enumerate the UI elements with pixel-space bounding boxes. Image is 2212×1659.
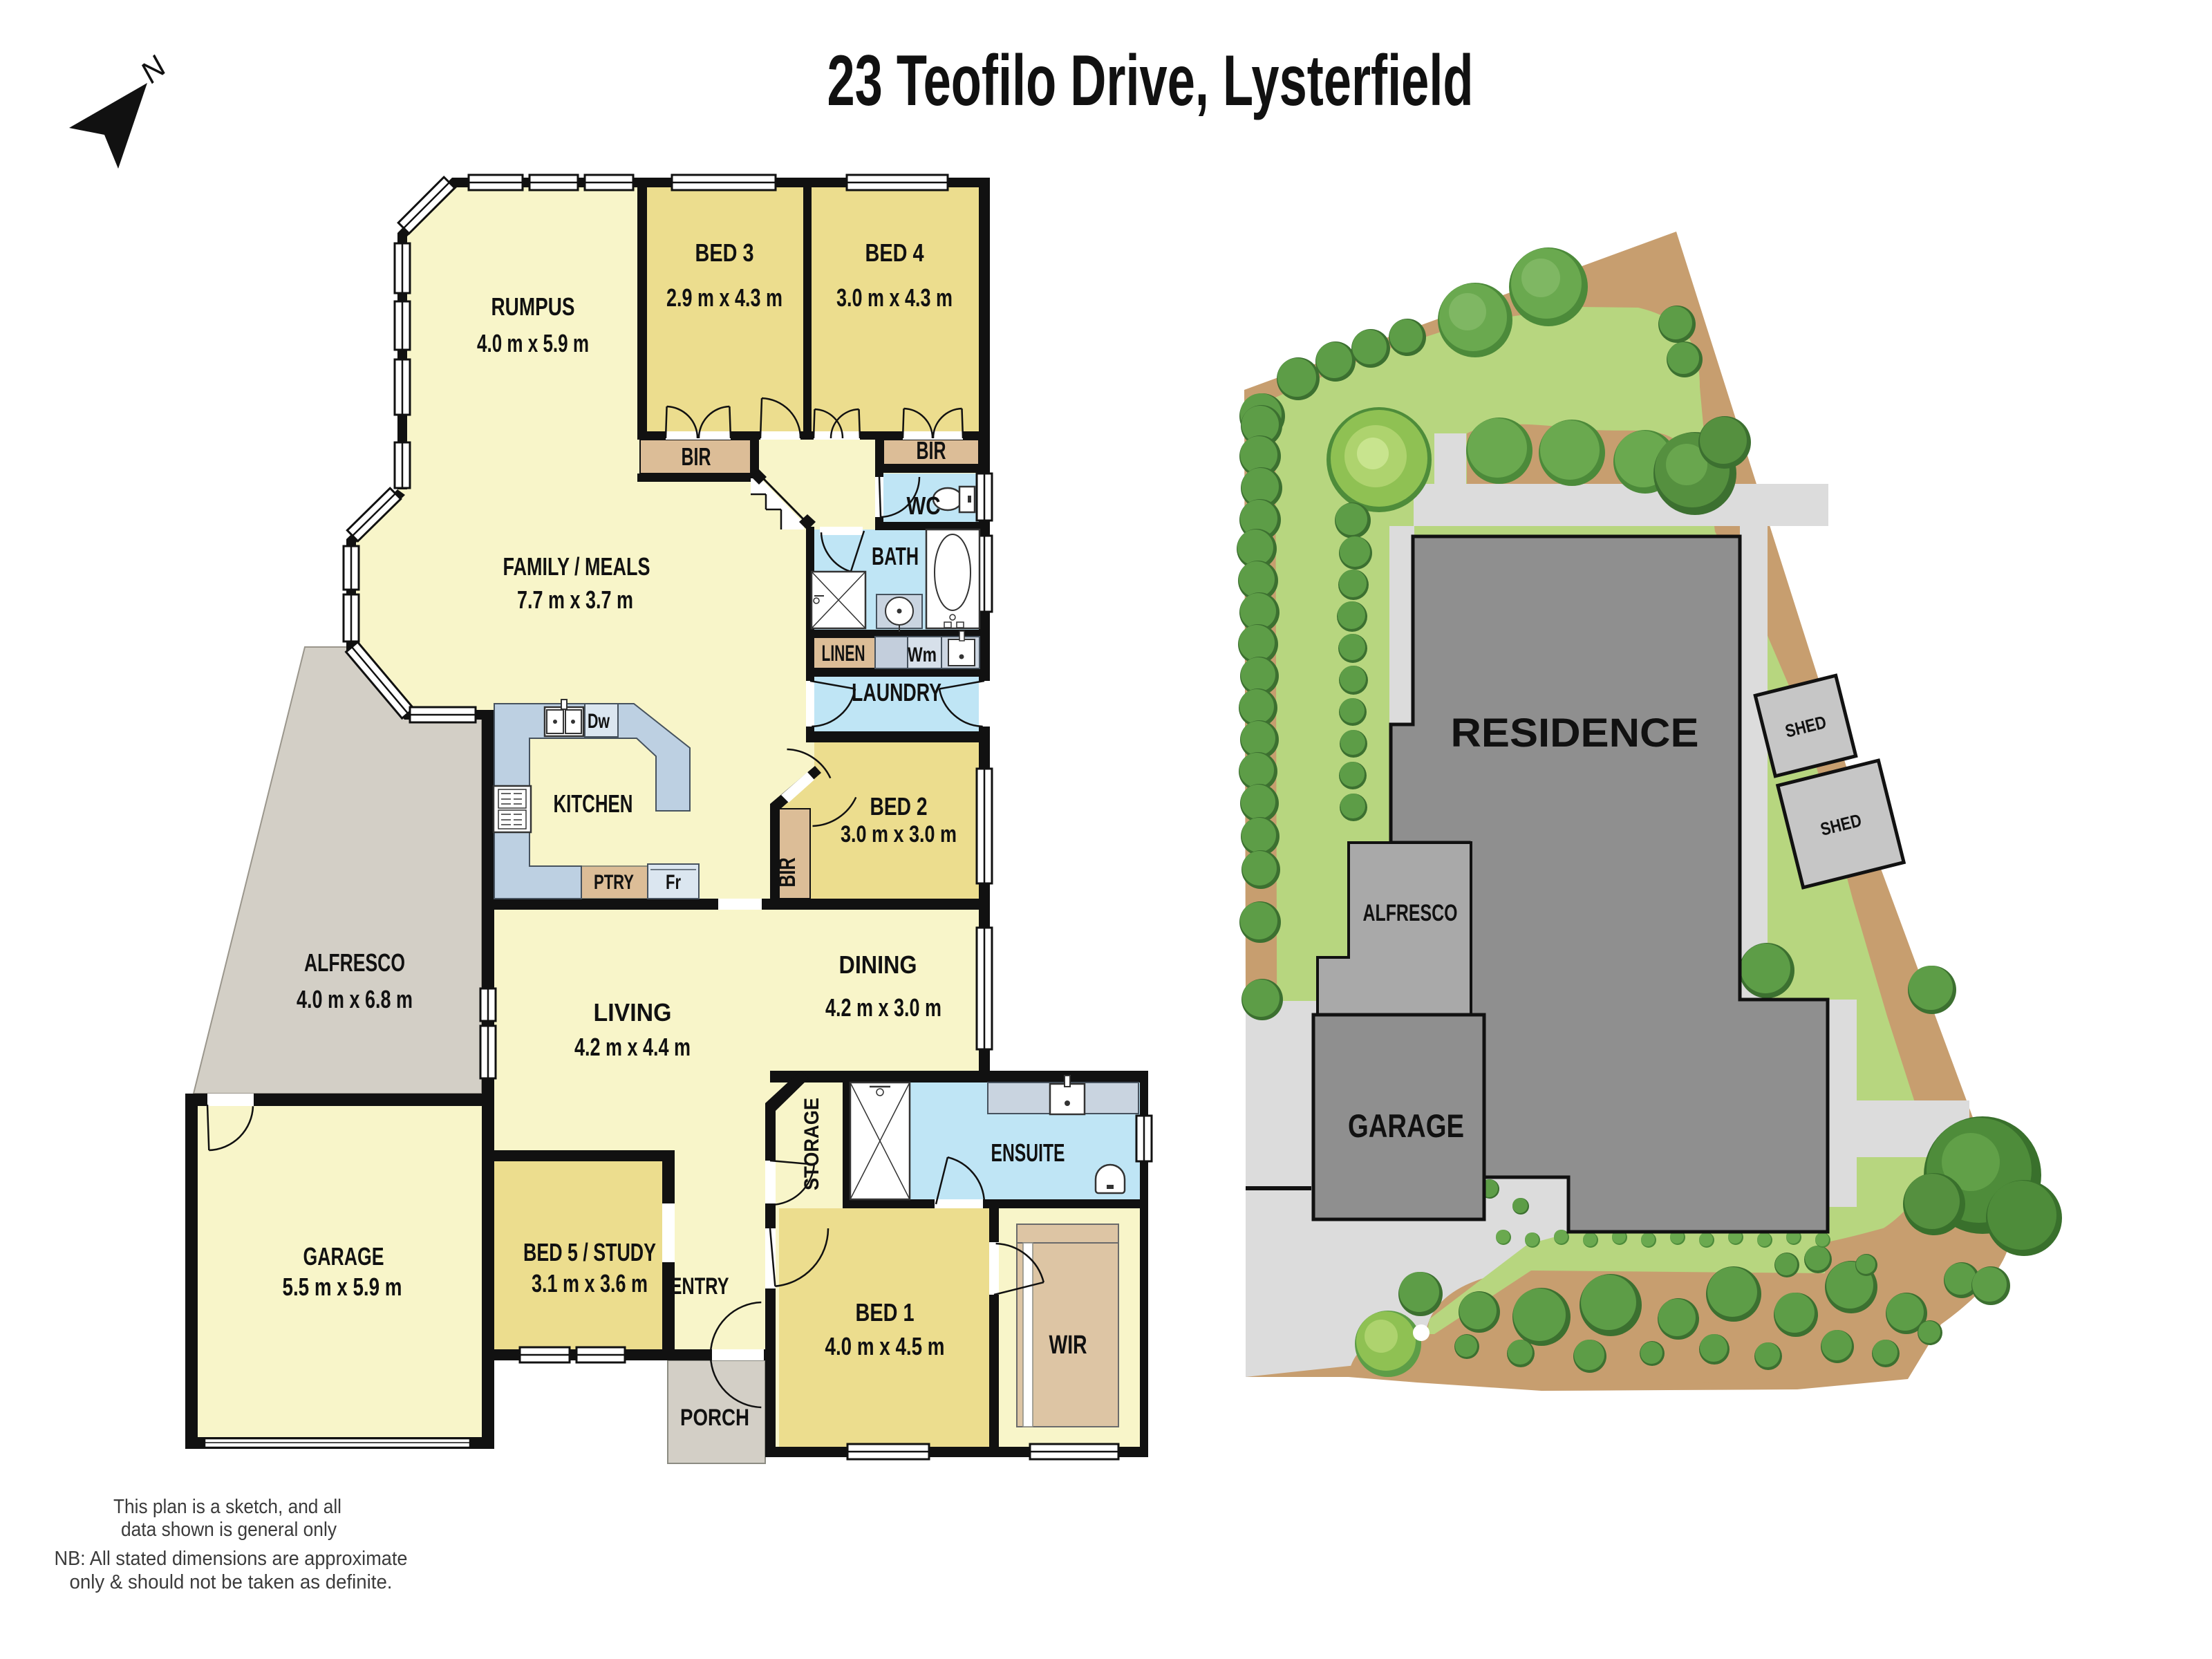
svg-text:BATH: BATH [872,542,919,570]
svg-text:DINING: DINING [839,950,917,979]
svg-text:BED 4: BED 4 [865,238,924,267]
svg-text:3.0 m x 4.3 m: 3.0 m x 4.3 m [836,283,953,312]
svg-text:Dw: Dw [588,710,610,733]
svg-text:NB: All stated dimensions are: NB: All stated dimensions are approximat… [55,1548,408,1570]
svg-text:BED 3: BED 3 [695,238,754,267]
svg-text:PTRY: PTRY [594,871,634,894]
svg-text:WIR: WIR [1049,1331,1087,1360]
svg-text:BED 2: BED 2 [870,792,928,821]
svg-text:PORCH: PORCH [680,1405,749,1431]
svg-text:BED 1: BED 1 [856,1298,915,1327]
svg-text:RESIDENCE: RESIDENCE [1451,711,1699,756]
svg-text:This plan is a sketch, and all: This plan is a sketch, and all [113,1496,341,1518]
svg-text:ENSUITE: ENSUITE [991,1138,1065,1167]
svg-text:BIR: BIR [682,442,711,471]
svg-text:LAUNDRY: LAUNDRY [852,678,941,706]
svg-text:GARAGE: GARAGE [303,1242,384,1271]
svg-text:LIVING: LIVING [594,998,672,1027]
svg-text:data shown is general only: data shown is general only [121,1519,337,1541]
svg-text:7.7 m x 3.7 m: 7.7 m x 3.7 m [517,585,633,614]
svg-text:ALFRESCO: ALFRESCO [304,948,405,977]
svg-text:Fr: Fr [666,871,681,894]
svg-text:WC: WC [907,491,941,520]
svg-text:Wm: Wm [908,644,937,666]
svg-text:BED 5 / STUDY: BED 5 / STUDY [523,1238,656,1266]
svg-text:KITCHEN: KITCHEN [554,789,633,818]
svg-text:5.5 m x 5.9 m: 5.5 m x 5.9 m [283,1273,402,1301]
svg-text:GARAGE: GARAGE [1348,1107,1464,1144]
svg-text:23 Teofilo Drive, Lysterfield: 23 Teofilo Drive, Lysterfield [827,41,1474,121]
svg-text:RUMPUS: RUMPUS [491,292,575,321]
svg-text:STORAGE: STORAGE [800,1098,823,1190]
svg-text:4.0 m x 4.5 m: 4.0 m x 4.5 m [825,1332,945,1360]
svg-text:only & should not be taken as: only & should not be taken as definite. [70,1571,393,1593]
svg-text:2.9 m x 4.3 m: 2.9 m x 4.3 m [666,283,782,312]
svg-text:4.2 m x 3.0 m: 4.2 m x 3.0 m [825,993,941,1022]
svg-text:ALFRESCO: ALFRESCO [1363,900,1458,926]
svg-text:BIR: BIR [917,436,946,465]
svg-text:4.2 m x 4.4 m: 4.2 m x 4.4 m [574,1033,691,1061]
svg-text:4.0 m x 5.9 m: 4.0 m x 5.9 m [477,329,589,357]
svg-text:FAMILY / MEALS: FAMILY / MEALS [503,552,650,581]
svg-text:4.0 m x 6.8 m: 4.0 m x 6.8 m [297,985,413,1013]
svg-text:3.1 m x 3.6 m: 3.1 m x 3.6 m [532,1269,648,1297]
svg-text:ENTRY: ENTRY [671,1273,729,1300]
svg-text:BIR: BIR [774,858,800,888]
svg-text:LINEN: LINEN [822,641,865,666]
svg-text:3.0 m x 3.0 m: 3.0 m x 3.0 m [841,821,957,847]
